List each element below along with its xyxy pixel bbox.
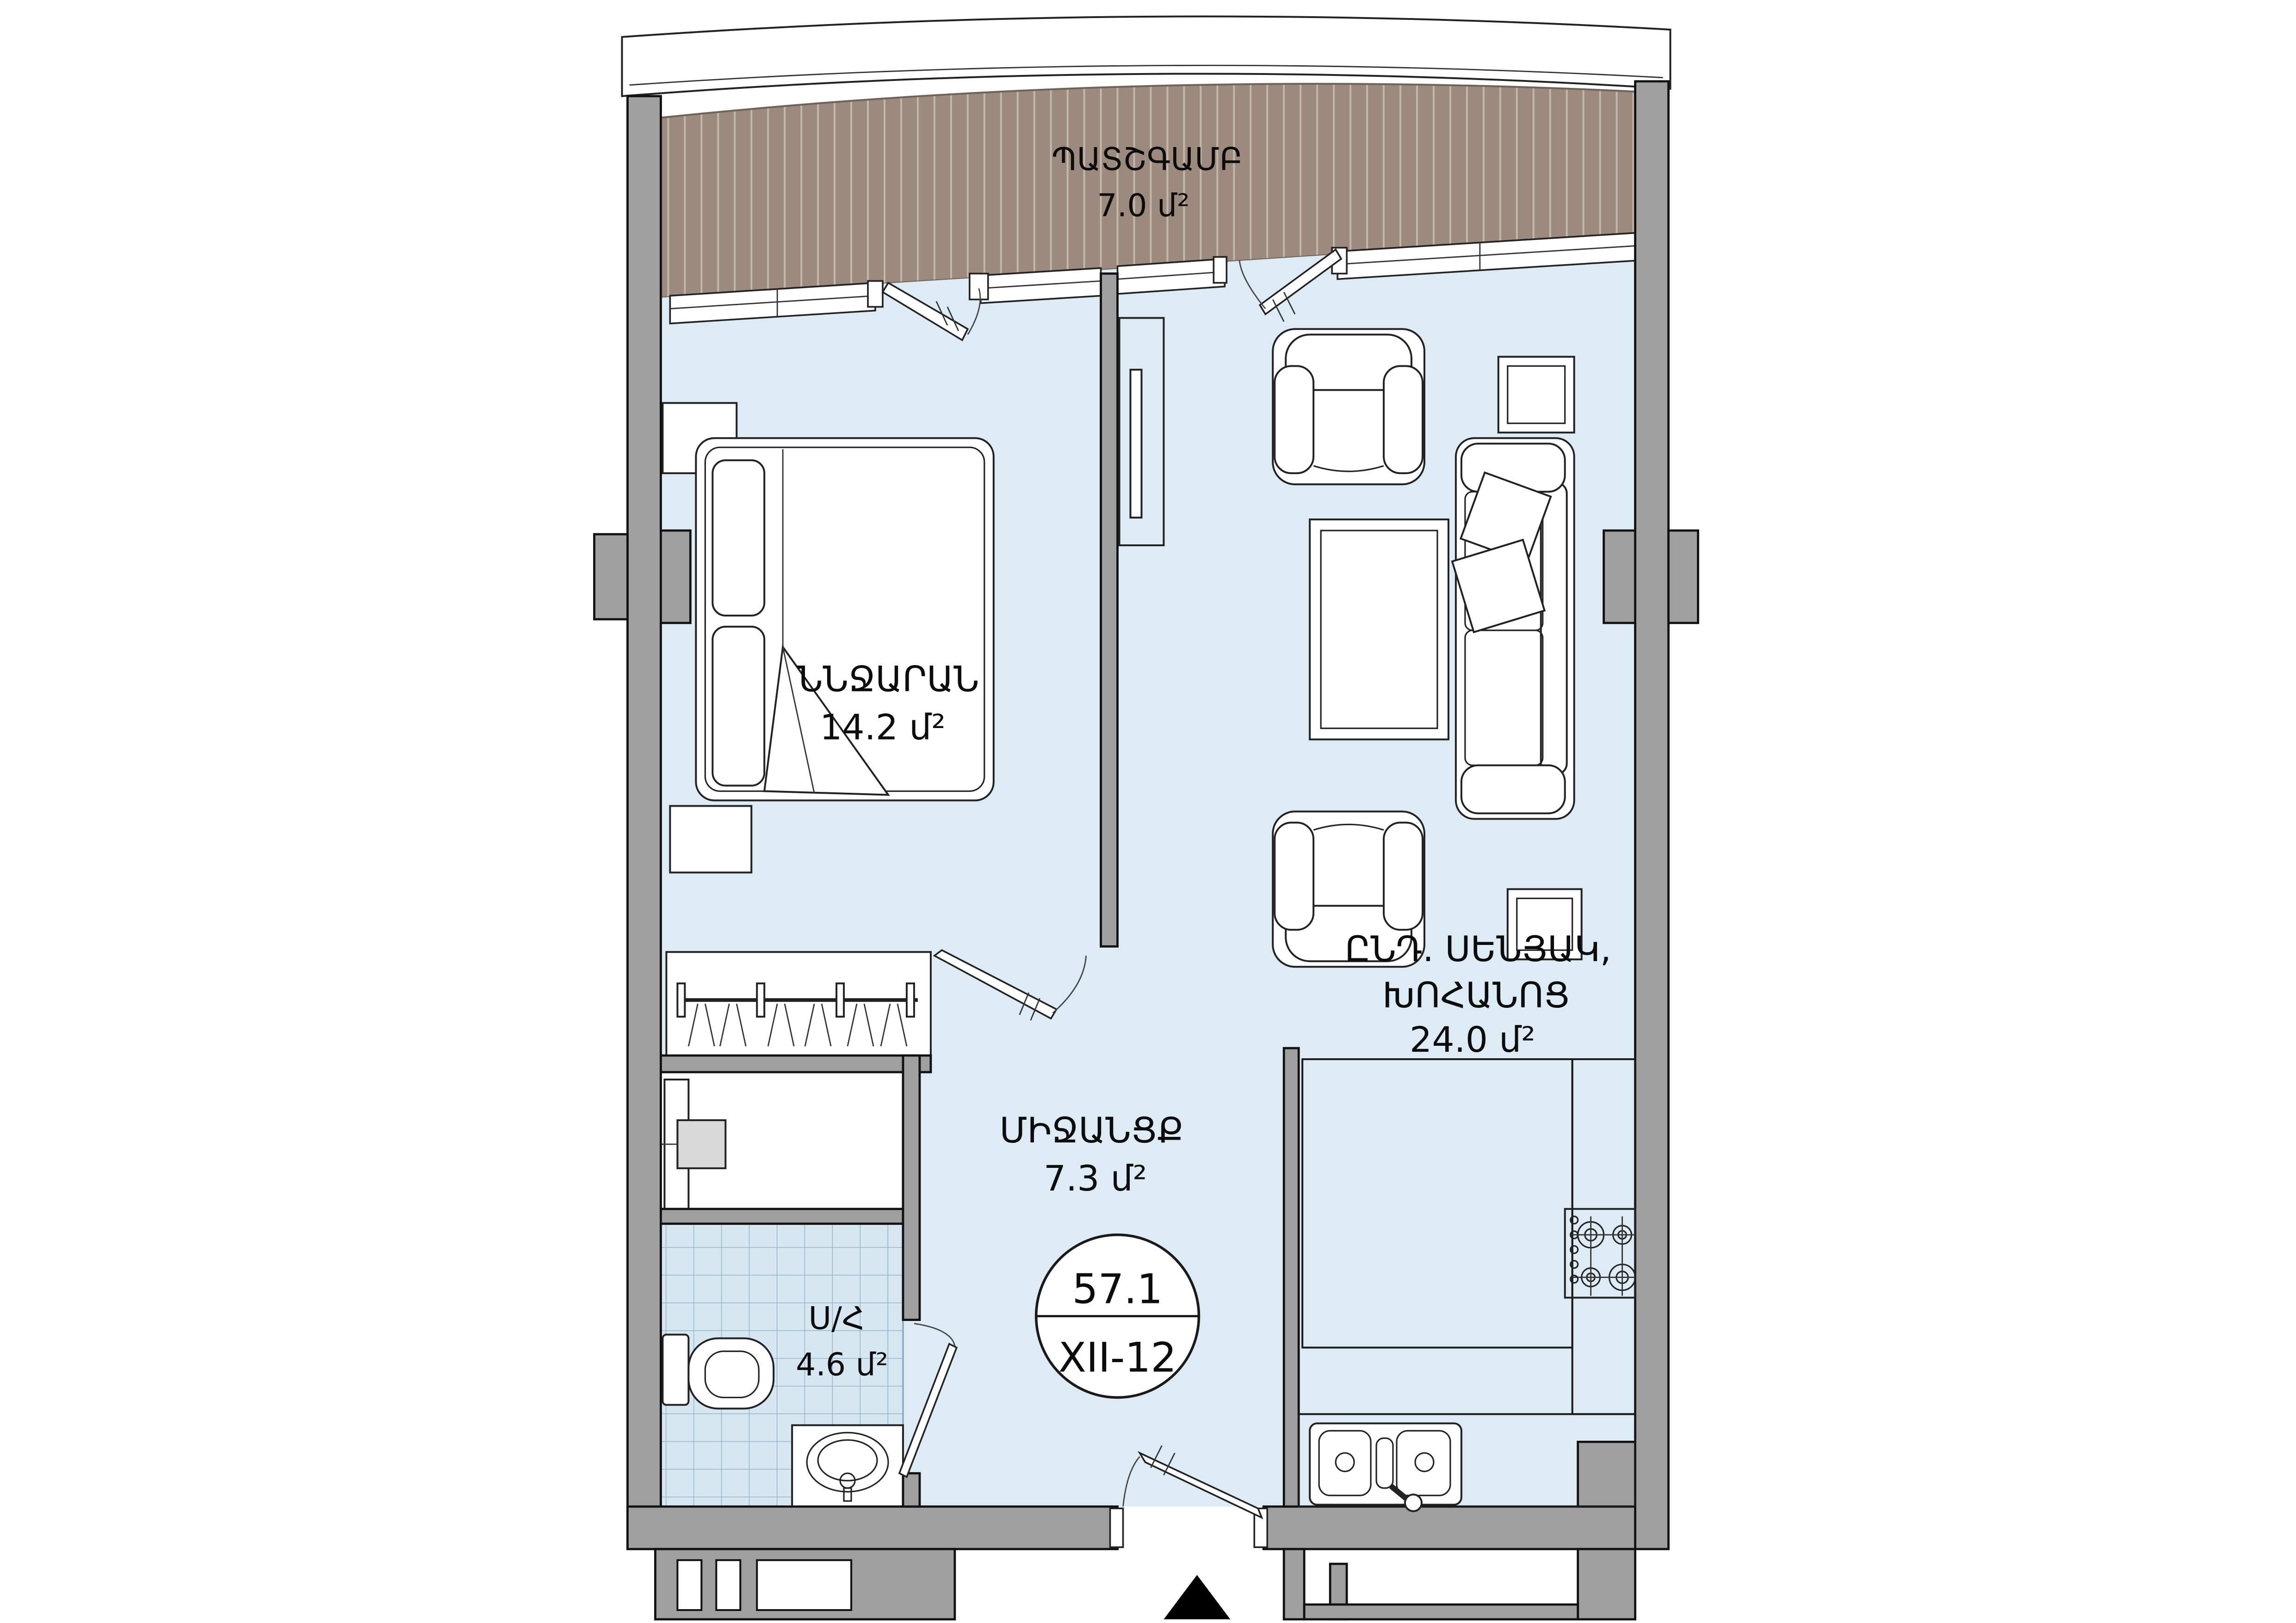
hallway-area: 7.3 մ² bbox=[1044, 1158, 1147, 1199]
living-label-line1: ԸՆԴ. ՍԵՆՅԱԿ, bbox=[1345, 929, 1611, 969]
corner-pier bbox=[1578, 1442, 1635, 1506]
toilet bbox=[662, 1335, 774, 1409]
left-pier-inner bbox=[661, 531, 690, 623]
floor-plan: 57.1 XII-12 ՊԱՏՇԳԱՄԲ 7.0 մ² ՆՆՋԱՐԱՆ 14.2… bbox=[0, 0, 2296, 1623]
window-jamb bbox=[970, 273, 988, 299]
bathroom-top-wall bbox=[661, 1209, 903, 1224]
bottom-wall-right bbox=[1263, 1506, 1635, 1549]
kitchen-sink bbox=[1310, 1423, 1461, 1511]
bathroom-label: Ս/Հ bbox=[808, 1301, 864, 1337]
floor-plan-page: 57.1 XII-12 ՊԱՏՇԳԱՄԲ 7.0 մ² ՆՆՋԱՐԱՆ 14.2… bbox=[0, 0, 2296, 1623]
bathroom-right-wall-stub bbox=[903, 1473, 920, 1506]
balcony-area: 7.0 մ² bbox=[1097, 188, 1190, 224]
badge-total-area: 57.1 bbox=[1072, 1265, 1163, 1313]
hallway-label: ՄԻՋԱՆՑՔ bbox=[999, 1110, 1183, 1151]
wardrobe-wall bbox=[661, 1055, 931, 1072]
living-area: 24.0 մ² bbox=[1410, 1019, 1535, 1060]
bathroom-right-wall bbox=[903, 1055, 920, 1320]
right-wall bbox=[1635, 81, 1669, 1549]
pillow bbox=[712, 627, 764, 786]
pillow bbox=[712, 460, 764, 616]
nightstand bbox=[670, 806, 751, 873]
bathroom-sink bbox=[792, 1425, 903, 1506]
coffee-table bbox=[1310, 519, 1448, 740]
bedroom-area: 14.2 մ² bbox=[820, 707, 946, 748]
window-jamb bbox=[1213, 257, 1226, 283]
kitchen-partition bbox=[1284, 1048, 1299, 1506]
side-table bbox=[1498, 357, 1574, 432]
facade-band bbox=[622, 17, 1670, 96]
armchair bbox=[1273, 329, 1424, 484]
left-wall bbox=[627, 96, 661, 1549]
bottom-wall-left bbox=[627, 1506, 1117, 1549]
sofa bbox=[1452, 438, 1574, 819]
wardrobe bbox=[666, 952, 931, 1055]
left-pier-outer bbox=[594, 534, 628, 619]
tv-cabinet bbox=[1120, 318, 1164, 545]
entrance-arrow bbox=[1163, 1575, 1230, 1619]
bedroom-living-partition bbox=[1101, 273, 1118, 946]
balcony-label: ՊԱՏՇԳԱՄԲ bbox=[1052, 142, 1243, 178]
right-pier-outer bbox=[1669, 531, 1698, 623]
bathroom-area: 4.6 մ² bbox=[796, 1346, 888, 1383]
living-label-line2: ԽՈՀԱՆՈՑ bbox=[1382, 975, 1570, 1016]
badge-unit-code: XII-12 bbox=[1058, 1333, 1177, 1381]
window-jamb bbox=[868, 281, 883, 307]
unit-badge: 57.1 XII-12 bbox=[1036, 1235, 1199, 1398]
bedroom-label: ՆՆՋԱՐԱՆ bbox=[797, 659, 979, 700]
right-pier-inner bbox=[1604, 531, 1635, 623]
building-core bbox=[655, 1549, 1635, 1619]
